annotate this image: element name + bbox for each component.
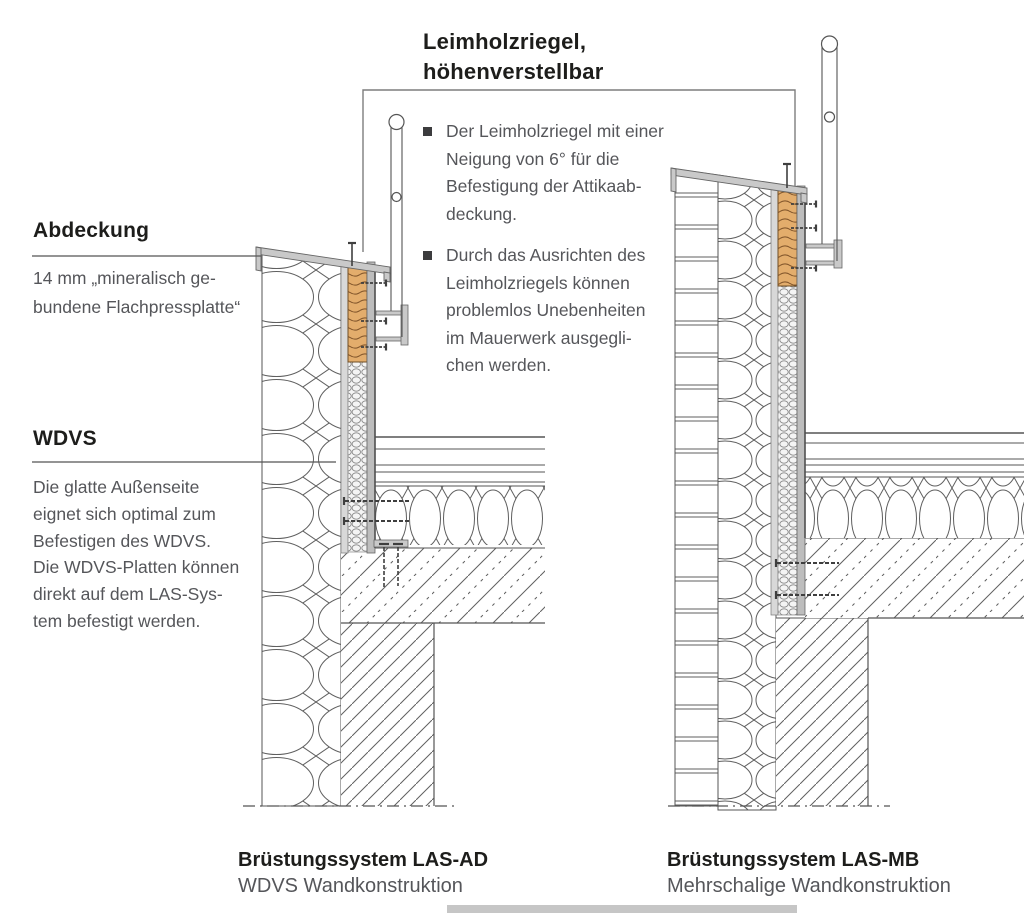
- bullet-square-icon: [423, 127, 432, 136]
- cavity-insulation-band: [718, 175, 776, 810]
- caption-title: Brüstungssystem LAS-MB: [667, 847, 951, 873]
- bullet-text: Durch das Ausrichten des Leimholzriegels…: [446, 242, 679, 380]
- masonry-wall: [341, 623, 434, 806]
- caption-las-ad: Brüstungssystem LAS-AD WDVS Wandkonstruk…: [238, 847, 488, 900]
- caption-las-mb: Brüstungssystem LAS-MB Mehrschalige Wand…: [667, 847, 951, 900]
- page: Leimholzriegel, höhenverstellbar Der Lei…: [0, 0, 1024, 913]
- wdvs-body: Die glatte Außenseite eignet sich optima…: [33, 474, 273, 635]
- bottom-table-edge: [447, 905, 797, 913]
- roof-insulation: [805, 477, 1024, 538]
- masonry-wall: [776, 618, 868, 806]
- abdeckung-body: 14 mm „mineralisch ge- bundene Flachpres…: [33, 264, 273, 321]
- las-profile-core: [778, 286, 797, 615]
- abdeckung-heading: Abdeckung: [33, 219, 149, 243]
- roof-insulation: [375, 486, 545, 545]
- bullet-square-icon: [423, 251, 432, 260]
- roof-membrane: [803, 433, 1024, 472]
- concrete-slab: [341, 548, 545, 623]
- callout-title: Leimholzriegel, höhenverstellbar: [423, 27, 603, 87]
- wdvs-insulation-band: [262, 252, 341, 806]
- wdvs-heading: WDVS: [33, 427, 97, 451]
- wood-beam: [778, 188, 797, 286]
- bullet-text: Der Leimholzriegel mit einer Neigung von…: [446, 118, 679, 228]
- las-profile-face: [367, 262, 375, 553]
- las-profile-face: [797, 186, 805, 615]
- list-item: Der Leimholzriegel mit einer Neigung von…: [423, 118, 679, 228]
- section-las-mb: [668, 36, 1024, 810]
- facing-brick-shell: [675, 169, 718, 806]
- adjuster-rod: [822, 36, 838, 261]
- adjuster-bracket: [376, 305, 408, 345]
- adjuster-rod: [389, 115, 404, 338]
- caption-subtitle: Mehrschalige Wandkonstruktion: [667, 873, 951, 900]
- roof-membrane: [373, 437, 545, 482]
- wood-beam: [348, 264, 367, 362]
- concrete-slab: [805, 538, 1024, 618]
- las-profile-core: [348, 360, 367, 552]
- callout-bullet-list: Der Leimholzriegel mit einer Neigung von…: [423, 118, 679, 394]
- list-item: Durch das Ausrichten des Leimholzriegels…: [423, 242, 679, 380]
- caption-title: Brüstungssystem LAS-AD: [238, 847, 488, 873]
- caption-subtitle: WDVS Wandkonstruktion: [238, 873, 488, 900]
